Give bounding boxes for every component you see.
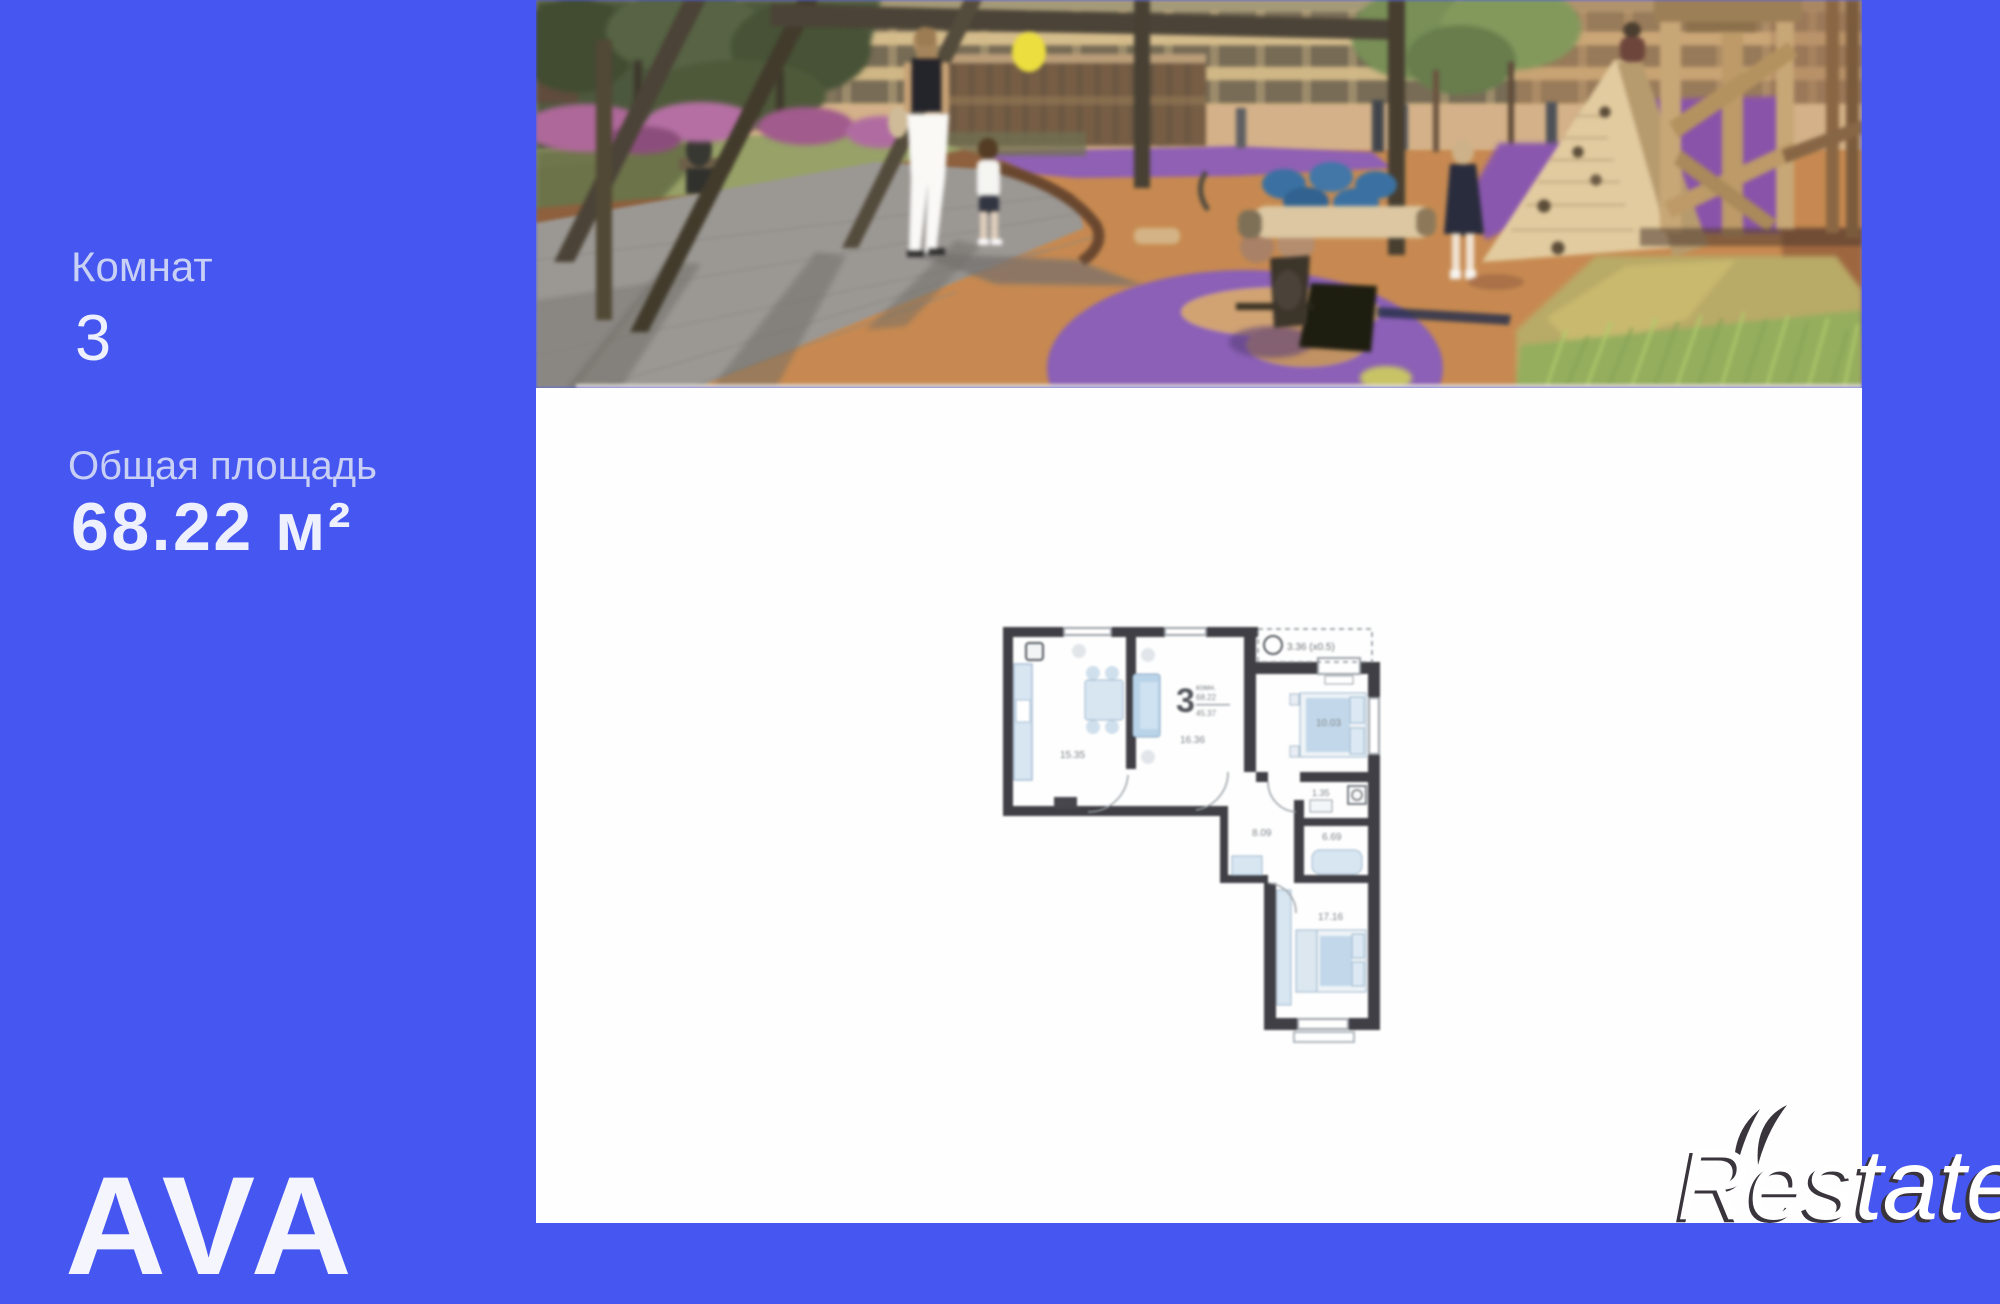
svg-text:15.35: 15.35	[1060, 750, 1085, 761]
svg-text:комн.: комн.	[1196, 683, 1216, 692]
svg-text:3.36 (х0.5): 3.36 (х0.5)	[1287, 642, 1335, 653]
svg-text:16.36: 16.36	[1180, 735, 1205, 746]
svg-text:68.22: 68.22	[1196, 693, 1217, 702]
svg-text:3: 3	[1176, 682, 1195, 720]
svg-text:6.69: 6.69	[1322, 832, 1342, 843]
svg-text:17.16: 17.16	[1318, 912, 1343, 923]
svg-text:1.35: 1.35	[1312, 788, 1330, 798]
svg-text:45.37: 45.37	[1196, 709, 1217, 718]
svg-text:10.03: 10.03	[1316, 718, 1341, 729]
svg-text:8.09: 8.09	[1252, 828, 1272, 839]
